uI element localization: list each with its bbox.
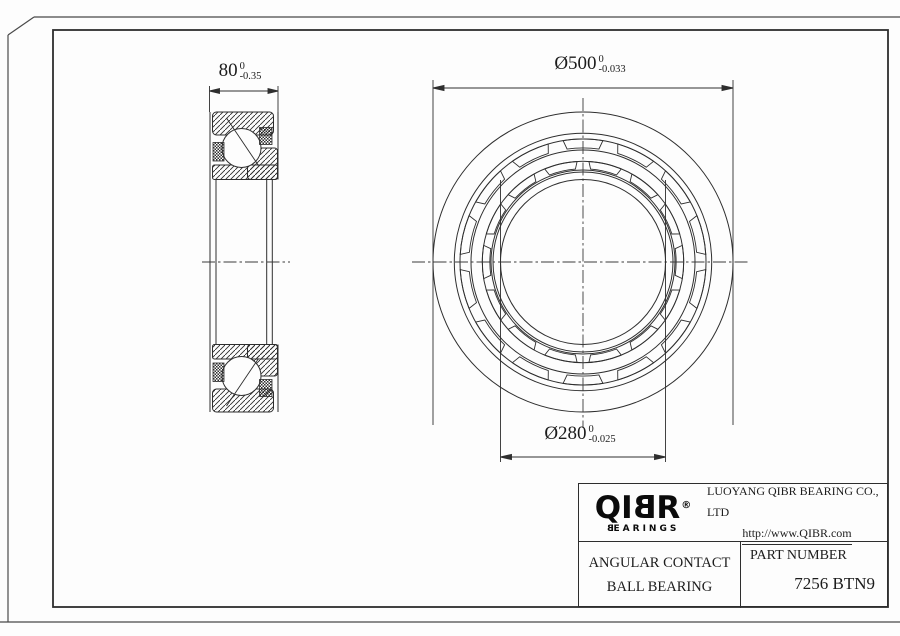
cage-pocket — [660, 204, 679, 234]
cage-section — [260, 380, 273, 397]
cage-pocket — [618, 357, 654, 380]
cage-pocket — [512, 144, 548, 167]
ball-bottom — [222, 357, 261, 396]
cage-pocket — [618, 144, 654, 167]
bore-dimension-label: Ø280 0 -0.025 — [495, 424, 665, 444]
width-dimension-lines — [210, 86, 279, 112]
part-number-label: PART NUMBER — [750, 548, 847, 564]
bearing-circle — [460, 139, 706, 385]
logo-letter: R — [656, 493, 680, 523]
width-value: 80 — [219, 61, 238, 80]
company-name: LUOYANG QIBR BEARING CO., LTD — [707, 481, 887, 523]
logo-letter-mirrored-b: B — [633, 493, 657, 523]
product-type-line2: BALL BEARING — [607, 575, 712, 599]
logo-letter: I — [621, 493, 633, 523]
outer-diameter-value: Ø500 — [554, 54, 596, 73]
bearing-circle — [491, 170, 675, 354]
cage-section — [260, 128, 273, 145]
logo-letter: Q — [595, 493, 621, 523]
qibr-logo: QIBR ® BEARINGS — [579, 484, 707, 541]
bore-tol-lower: -0.025 — [589, 435, 616, 445]
cage-pocket — [486, 290, 505, 320]
title-block: QIBR ® BEARINGS LUOYANG QIBR BEARING CO.… — [578, 483, 888, 607]
drawing-sheet: 80 0 -0.35 Ø500 0 -0.033 Ø280 0 -0.025 Q… — [0, 0, 900, 636]
cage-pocket — [660, 290, 679, 320]
outer-diameter-dimension-label: Ø500 0 -0.033 — [510, 54, 670, 74]
registered-trademark-icon: ® — [681, 491, 691, 521]
bore-value: Ø280 — [544, 424, 586, 443]
cage-pocket — [486, 204, 505, 234]
width-tol-lower: -0.35 — [240, 72, 262, 82]
cage-section — [213, 363, 224, 382]
width-dimension-label: 80 0 -0.35 — [198, 61, 282, 81]
centerlines — [202, 98, 750, 428]
product-type-line1: ANGULAR CONTACT — [589, 551, 731, 575]
part-number-value: 7256 BTN9 — [794, 574, 875, 594]
ball-top — [222, 129, 261, 168]
cage-pocket — [512, 357, 548, 380]
od-tol-lower: -0.033 — [599, 65, 626, 75]
cage-section — [213, 143, 224, 162]
